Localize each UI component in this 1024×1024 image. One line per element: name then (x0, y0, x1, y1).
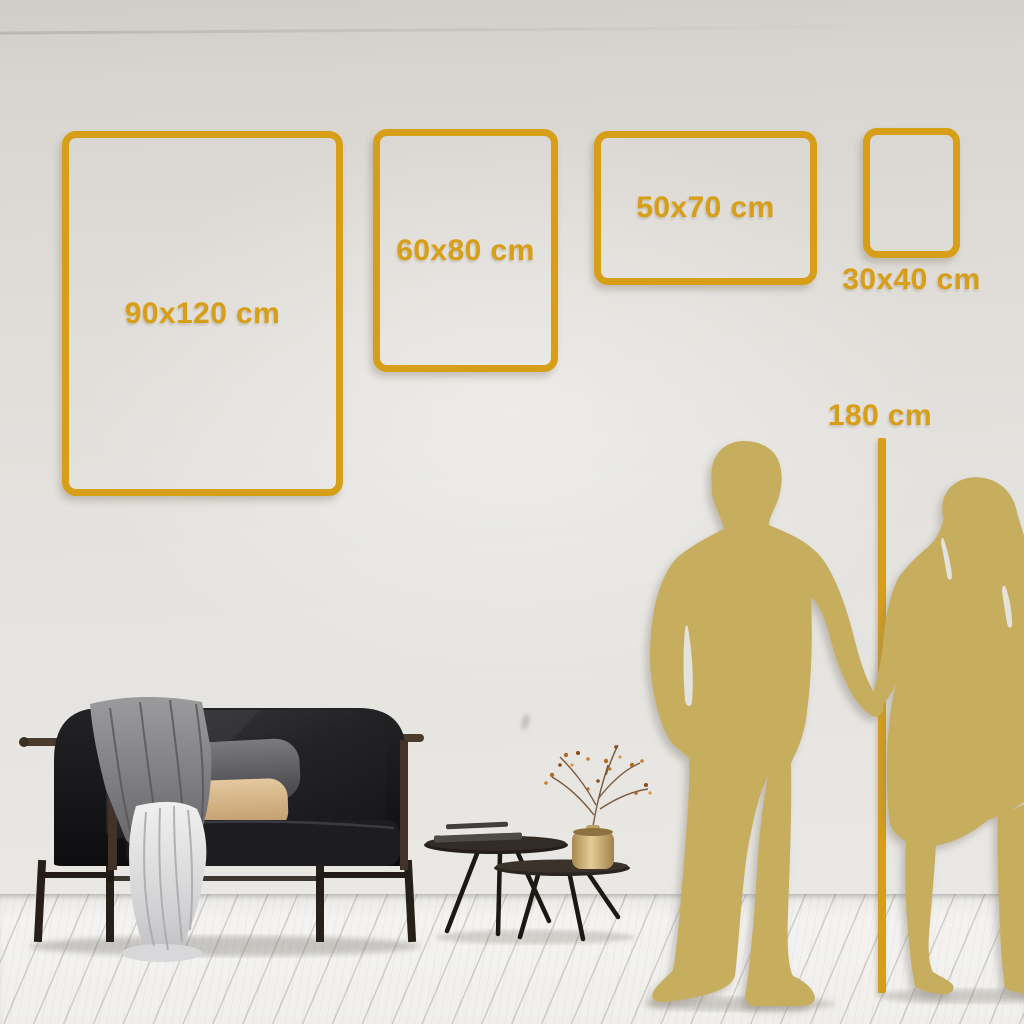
woman-silhouette (870, 477, 1024, 846)
table-floor-shadow (435, 930, 635, 944)
right-table-legs (520, 873, 618, 939)
sofa-back-post-right (400, 740, 408, 870)
sofa-floor-shadow (29, 936, 421, 956)
size-label-50x70: 50x70 cm (636, 191, 774, 225)
size-frame-60x80: 60x80 cm (373, 129, 558, 372)
brass-vase (572, 825, 614, 869)
woman-left-leg (905, 838, 953, 994)
size-label-90x120: 90x120 cm (125, 297, 280, 331)
cloth-floor-pile (122, 944, 202, 962)
size-guide-scene: 90x120 cm 60x80 cm 50x70 cm 30x40 cm 180… (0, 0, 1024, 1024)
sofa-legs (34, 860, 416, 942)
size-label-30x40: 30x40 cm (842, 263, 980, 297)
couple-silhouette (615, 425, 1024, 1024)
man-silhouette (650, 441, 883, 1006)
woman-right-leg (998, 797, 1024, 994)
book-stack (434, 822, 522, 843)
size-frame-90x120: 90x120 cm (62, 131, 343, 496)
size-label-60x80: 60x80 cm (396, 234, 534, 268)
size-frame-30x40: 30x40 cm (863, 128, 960, 258)
sofa-illustration (10, 690, 430, 970)
size-frame-50x70: 50x70 cm (594, 131, 817, 285)
white-drape-cloth (129, 802, 206, 957)
